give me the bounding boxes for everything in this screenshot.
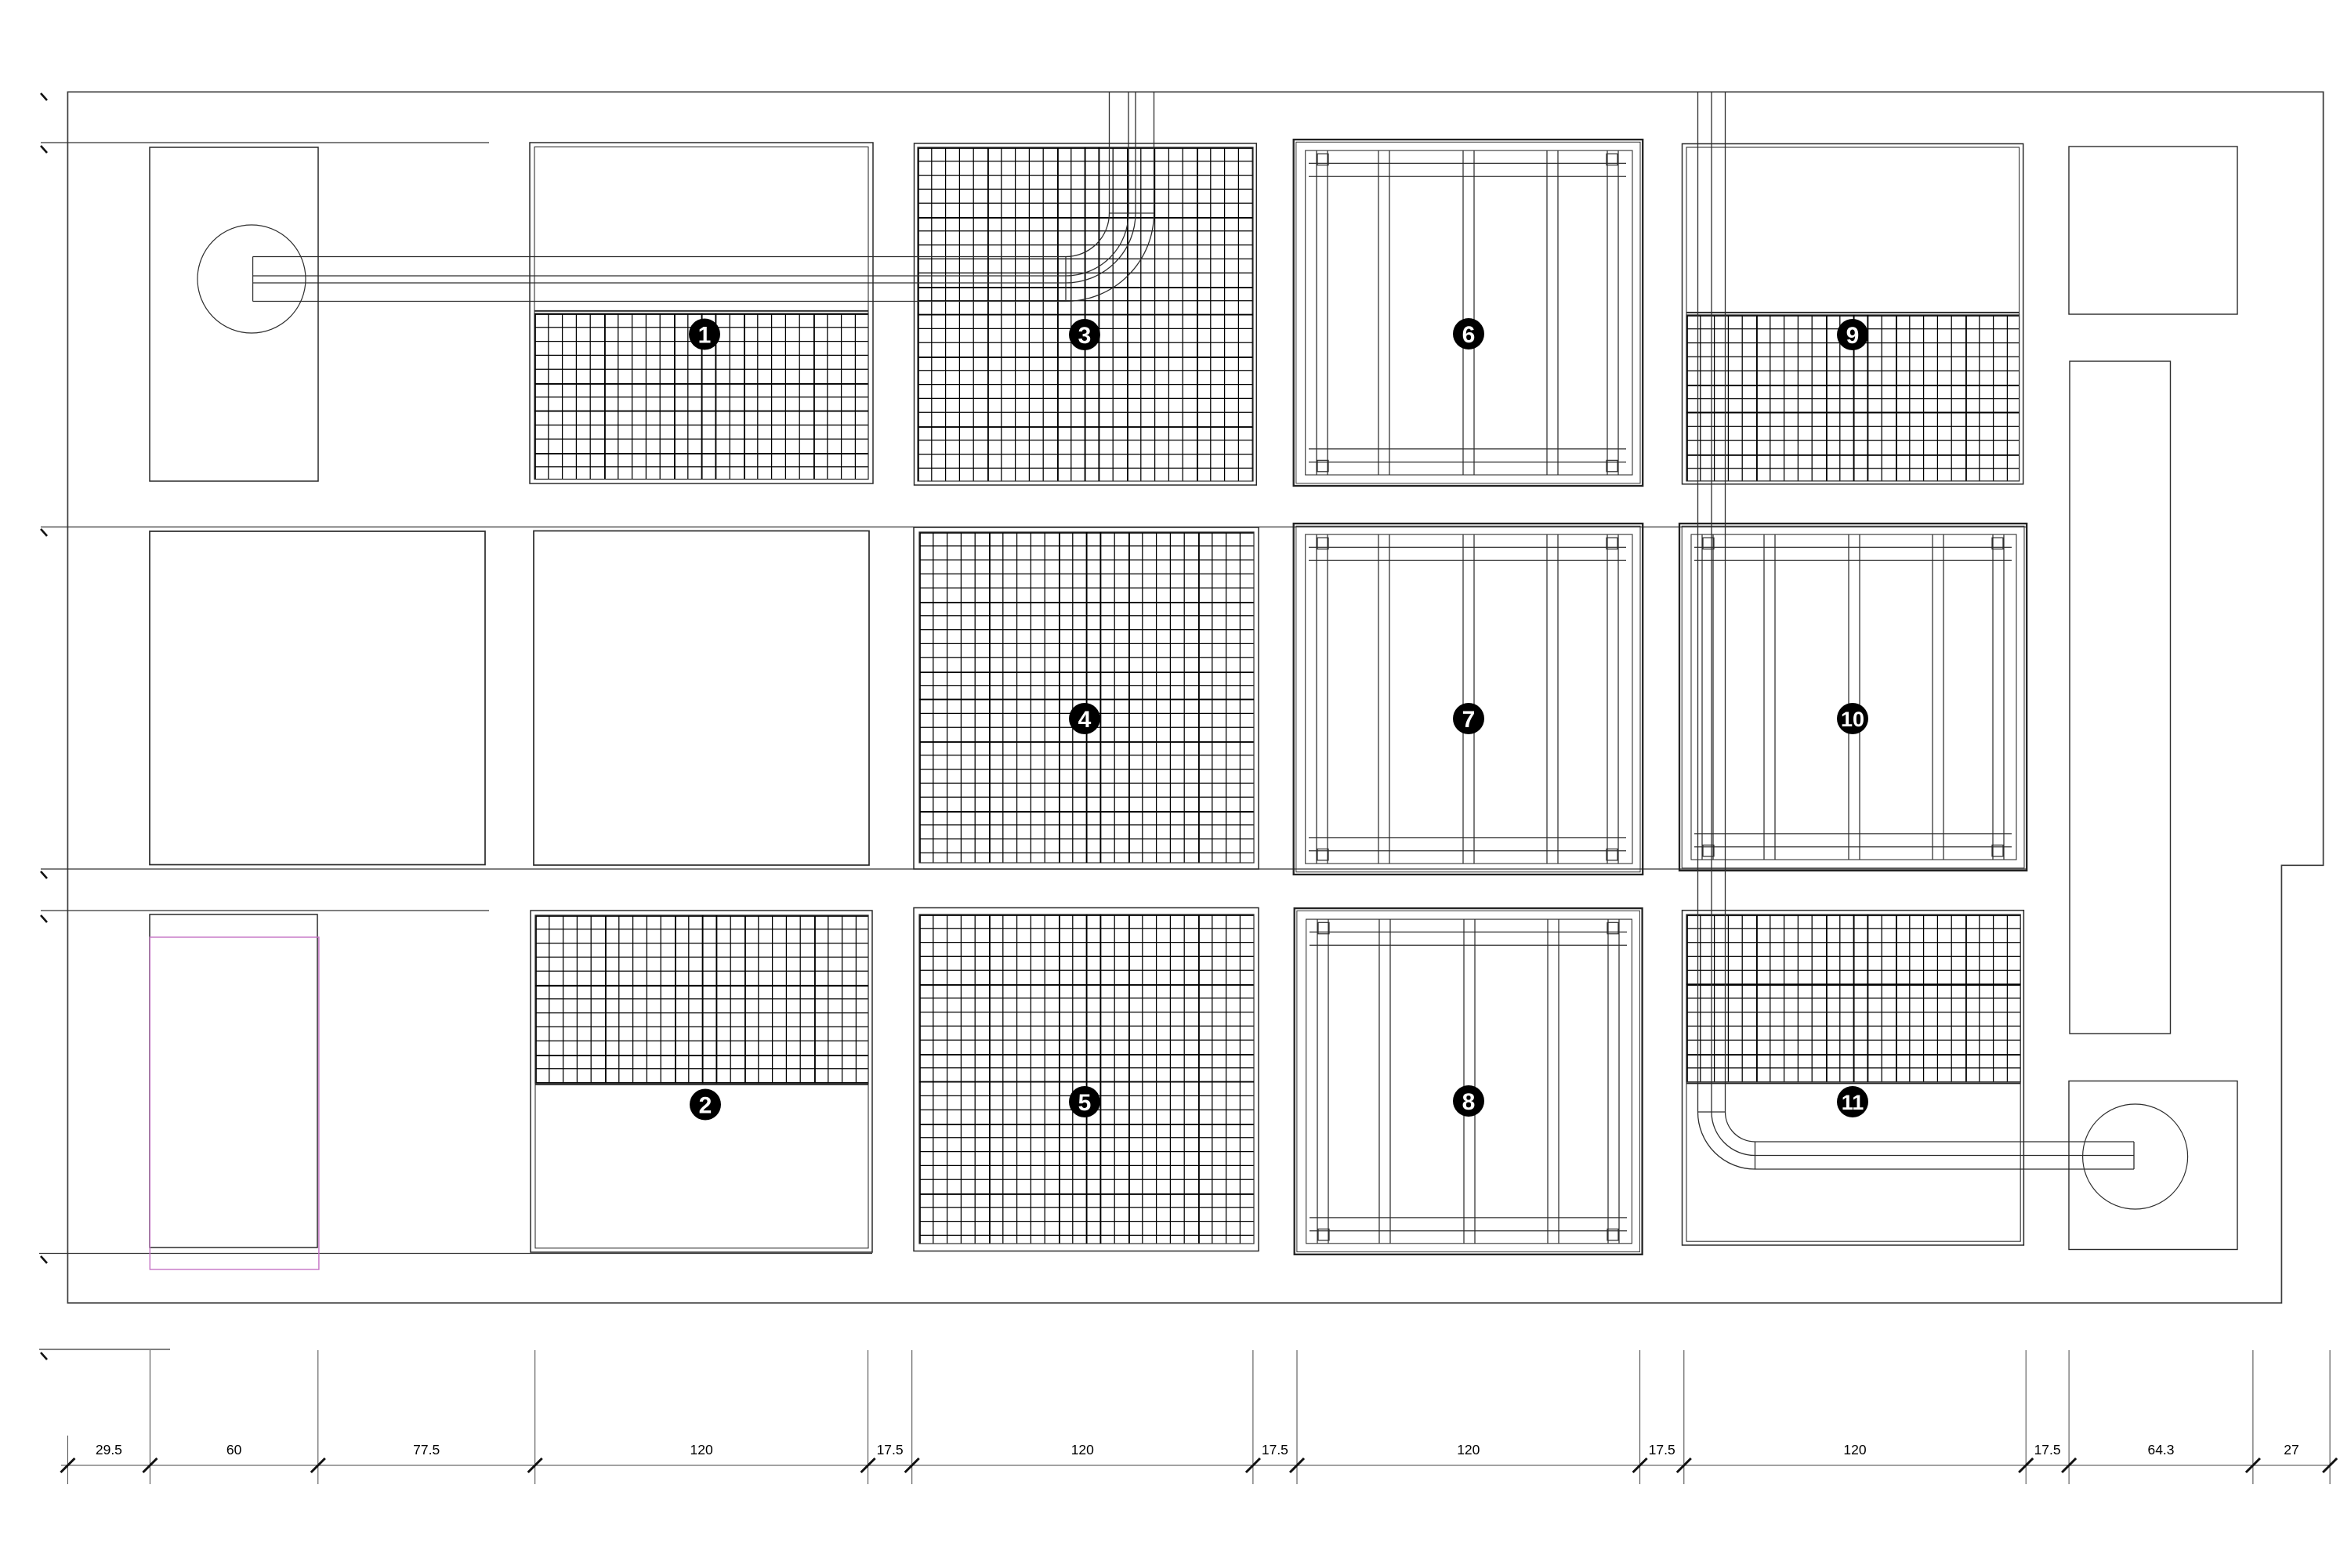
svg-text:11: 11	[1842, 1091, 1864, 1114]
svg-text:120: 120	[690, 1442, 712, 1458]
svg-text:1: 1	[698, 322, 712, 348]
svg-text:27: 27	[2284, 1442, 2298, 1458]
svg-text:8: 8	[1462, 1089, 1476, 1115]
svg-text:60: 60	[226, 1442, 242, 1458]
svg-text:17.5: 17.5	[877, 1442, 904, 1458]
svg-text:29.5: 29.5	[96, 1442, 122, 1458]
svg-text:5: 5	[1078, 1090, 1092, 1116]
svg-text:9: 9	[1846, 323, 1860, 349]
svg-text:10: 10	[1841, 708, 1864, 731]
svg-text:2: 2	[699, 1092, 712, 1118]
svg-text:77.5: 77.5	[413, 1442, 440, 1458]
svg-text:64.3: 64.3	[2147, 1442, 2174, 1458]
svg-text:17.5: 17.5	[2034, 1442, 2061, 1458]
svg-text:3: 3	[1078, 323, 1092, 349]
svg-text:120: 120	[1843, 1442, 1866, 1458]
svg-text:17.5: 17.5	[1649, 1442, 1675, 1458]
svg-text:4: 4	[1078, 707, 1092, 733]
svg-text:120: 120	[1071, 1442, 1094, 1458]
svg-text:120: 120	[1457, 1442, 1480, 1458]
svg-text:17.5: 17.5	[1262, 1442, 1288, 1458]
svg-text:7: 7	[1462, 707, 1476, 733]
svg-text:6: 6	[1462, 322, 1476, 348]
